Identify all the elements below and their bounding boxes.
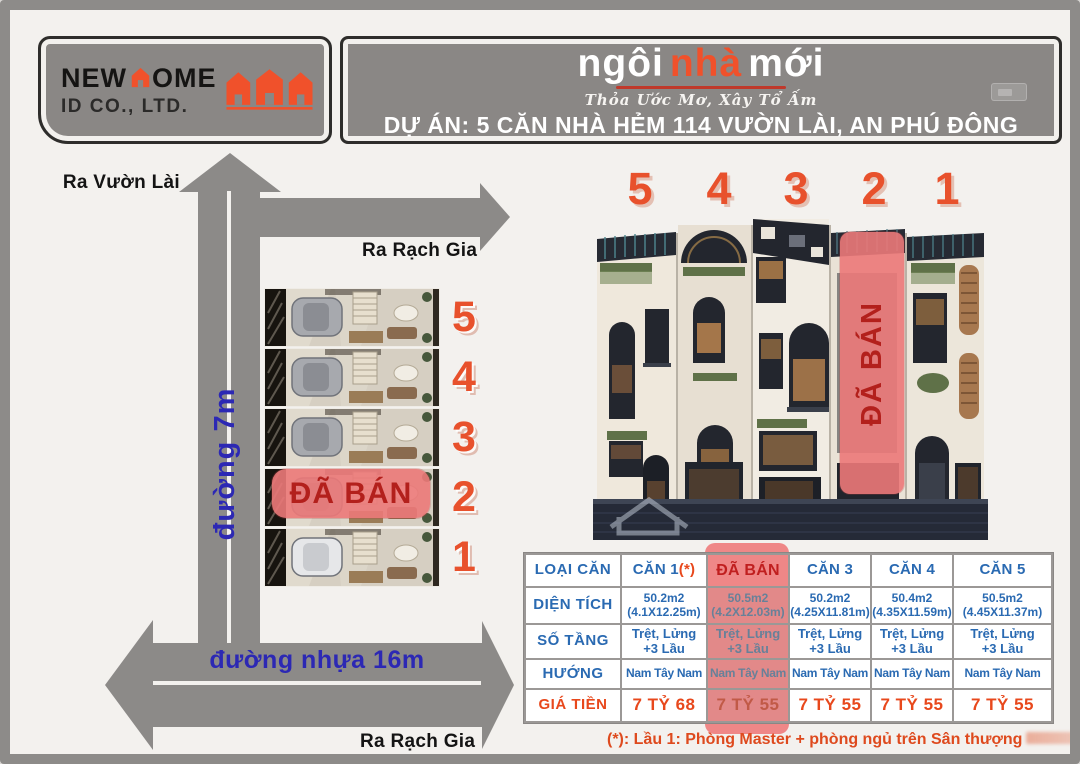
table-row-label: HƯỚNG — [526, 660, 620, 688]
table-col-header: CĂN 3 — [790, 555, 870, 586]
table-cell-sotang: Trệt, Lửng+3 Lầu — [954, 625, 1051, 658]
table-corner-label: LOẠI CĂN — [526, 555, 620, 586]
footnote: (*): Lầu 1: Phòng Master + phòng ngủ trê… — [607, 731, 1080, 749]
table-cell-sotang: Trệt, Lửng+3 Lầu — [790, 625, 870, 658]
table-col-header: ĐÃ BÁN — [708, 555, 788, 586]
render-unit-number: 4 — [696, 166, 742, 211]
table-col-header: CĂN 5 — [954, 555, 1051, 586]
table-row-label: DIỆN TÍCH — [526, 588, 620, 623]
table-cell-huong: Nam Tây Nam — [790, 660, 870, 688]
table-cell-dientich: 50.5m2(4.45X11.37m) — [954, 588, 1051, 623]
spec-table: LOẠI CĂNCĂN 1(*)ĐÃ BÁNCĂN 3CĂN 4CĂN 5DIỆ… — [523, 552, 1054, 724]
render-unit-number: 1 — [924, 166, 970, 211]
render-unit-number: 3 — [773, 166, 819, 211]
table-cell-dientich: 50.4m2(4.35X11.59m) — [872, 588, 952, 623]
sold-badge-render-label: ĐÃ BÁN — [856, 301, 889, 426]
table-cell-gia: 7 TỶ 68 — [622, 690, 706, 721]
table-cell-gia: 7 TỶ 55 — [954, 690, 1051, 721]
sold-badge-render: ĐÃ BÁN — [840, 232, 904, 494]
table-cell-gia: 7 TỶ 55 — [708, 690, 788, 721]
table-cell-dientich: 50.2m2(4.25X11.81m) — [790, 588, 870, 623]
table-cell-huong: Nam Tây Nam — [954, 660, 1051, 688]
table-cell-dientich: 50.2m2(4.1X12.25m) — [622, 588, 706, 623]
building-render — [593, 213, 988, 540]
table-cell-huong: Nam Tây Nam — [708, 660, 788, 688]
footnote-text: (*): Lầu 1: Phòng Master + phòng ngủ trê… — [607, 731, 1022, 748]
table-cell-dientich: 50.5m2(4.2X12.03m) — [708, 588, 788, 623]
table-cell-sotang: Trệt, Lửng+3 Lầu — [872, 625, 952, 658]
table-cell-sotang: Trệt, Lửng+3 Lầu — [708, 625, 788, 658]
table-row-label: SỐ TẦNG — [526, 625, 620, 658]
table-cell-gia: 7 TỶ 55 — [790, 690, 870, 721]
table-col-header: CĂN 1(*) — [622, 555, 706, 586]
table-cell-sotang: Trệt, Lửng+3 Lầu — [622, 625, 706, 658]
table-col-header: CĂN 4 — [872, 555, 952, 586]
render-unit-number: 2 — [851, 166, 897, 211]
flyer-page: NEW OME ID CO., LTD. ngôinhàmới Thỏa Ước — [0, 0, 1080, 764]
watermark-smudge — [1026, 732, 1080, 744]
table-row-label: GIÁ TIỀN — [526, 690, 620, 721]
render-unit-number: 5 — [617, 166, 663, 211]
table-cell-huong: Nam Tây Nam — [872, 660, 952, 688]
table-cell-gia: 7 TỶ 55 — [872, 690, 952, 721]
table-cell-huong: Nam Tây Nam — [622, 660, 706, 688]
